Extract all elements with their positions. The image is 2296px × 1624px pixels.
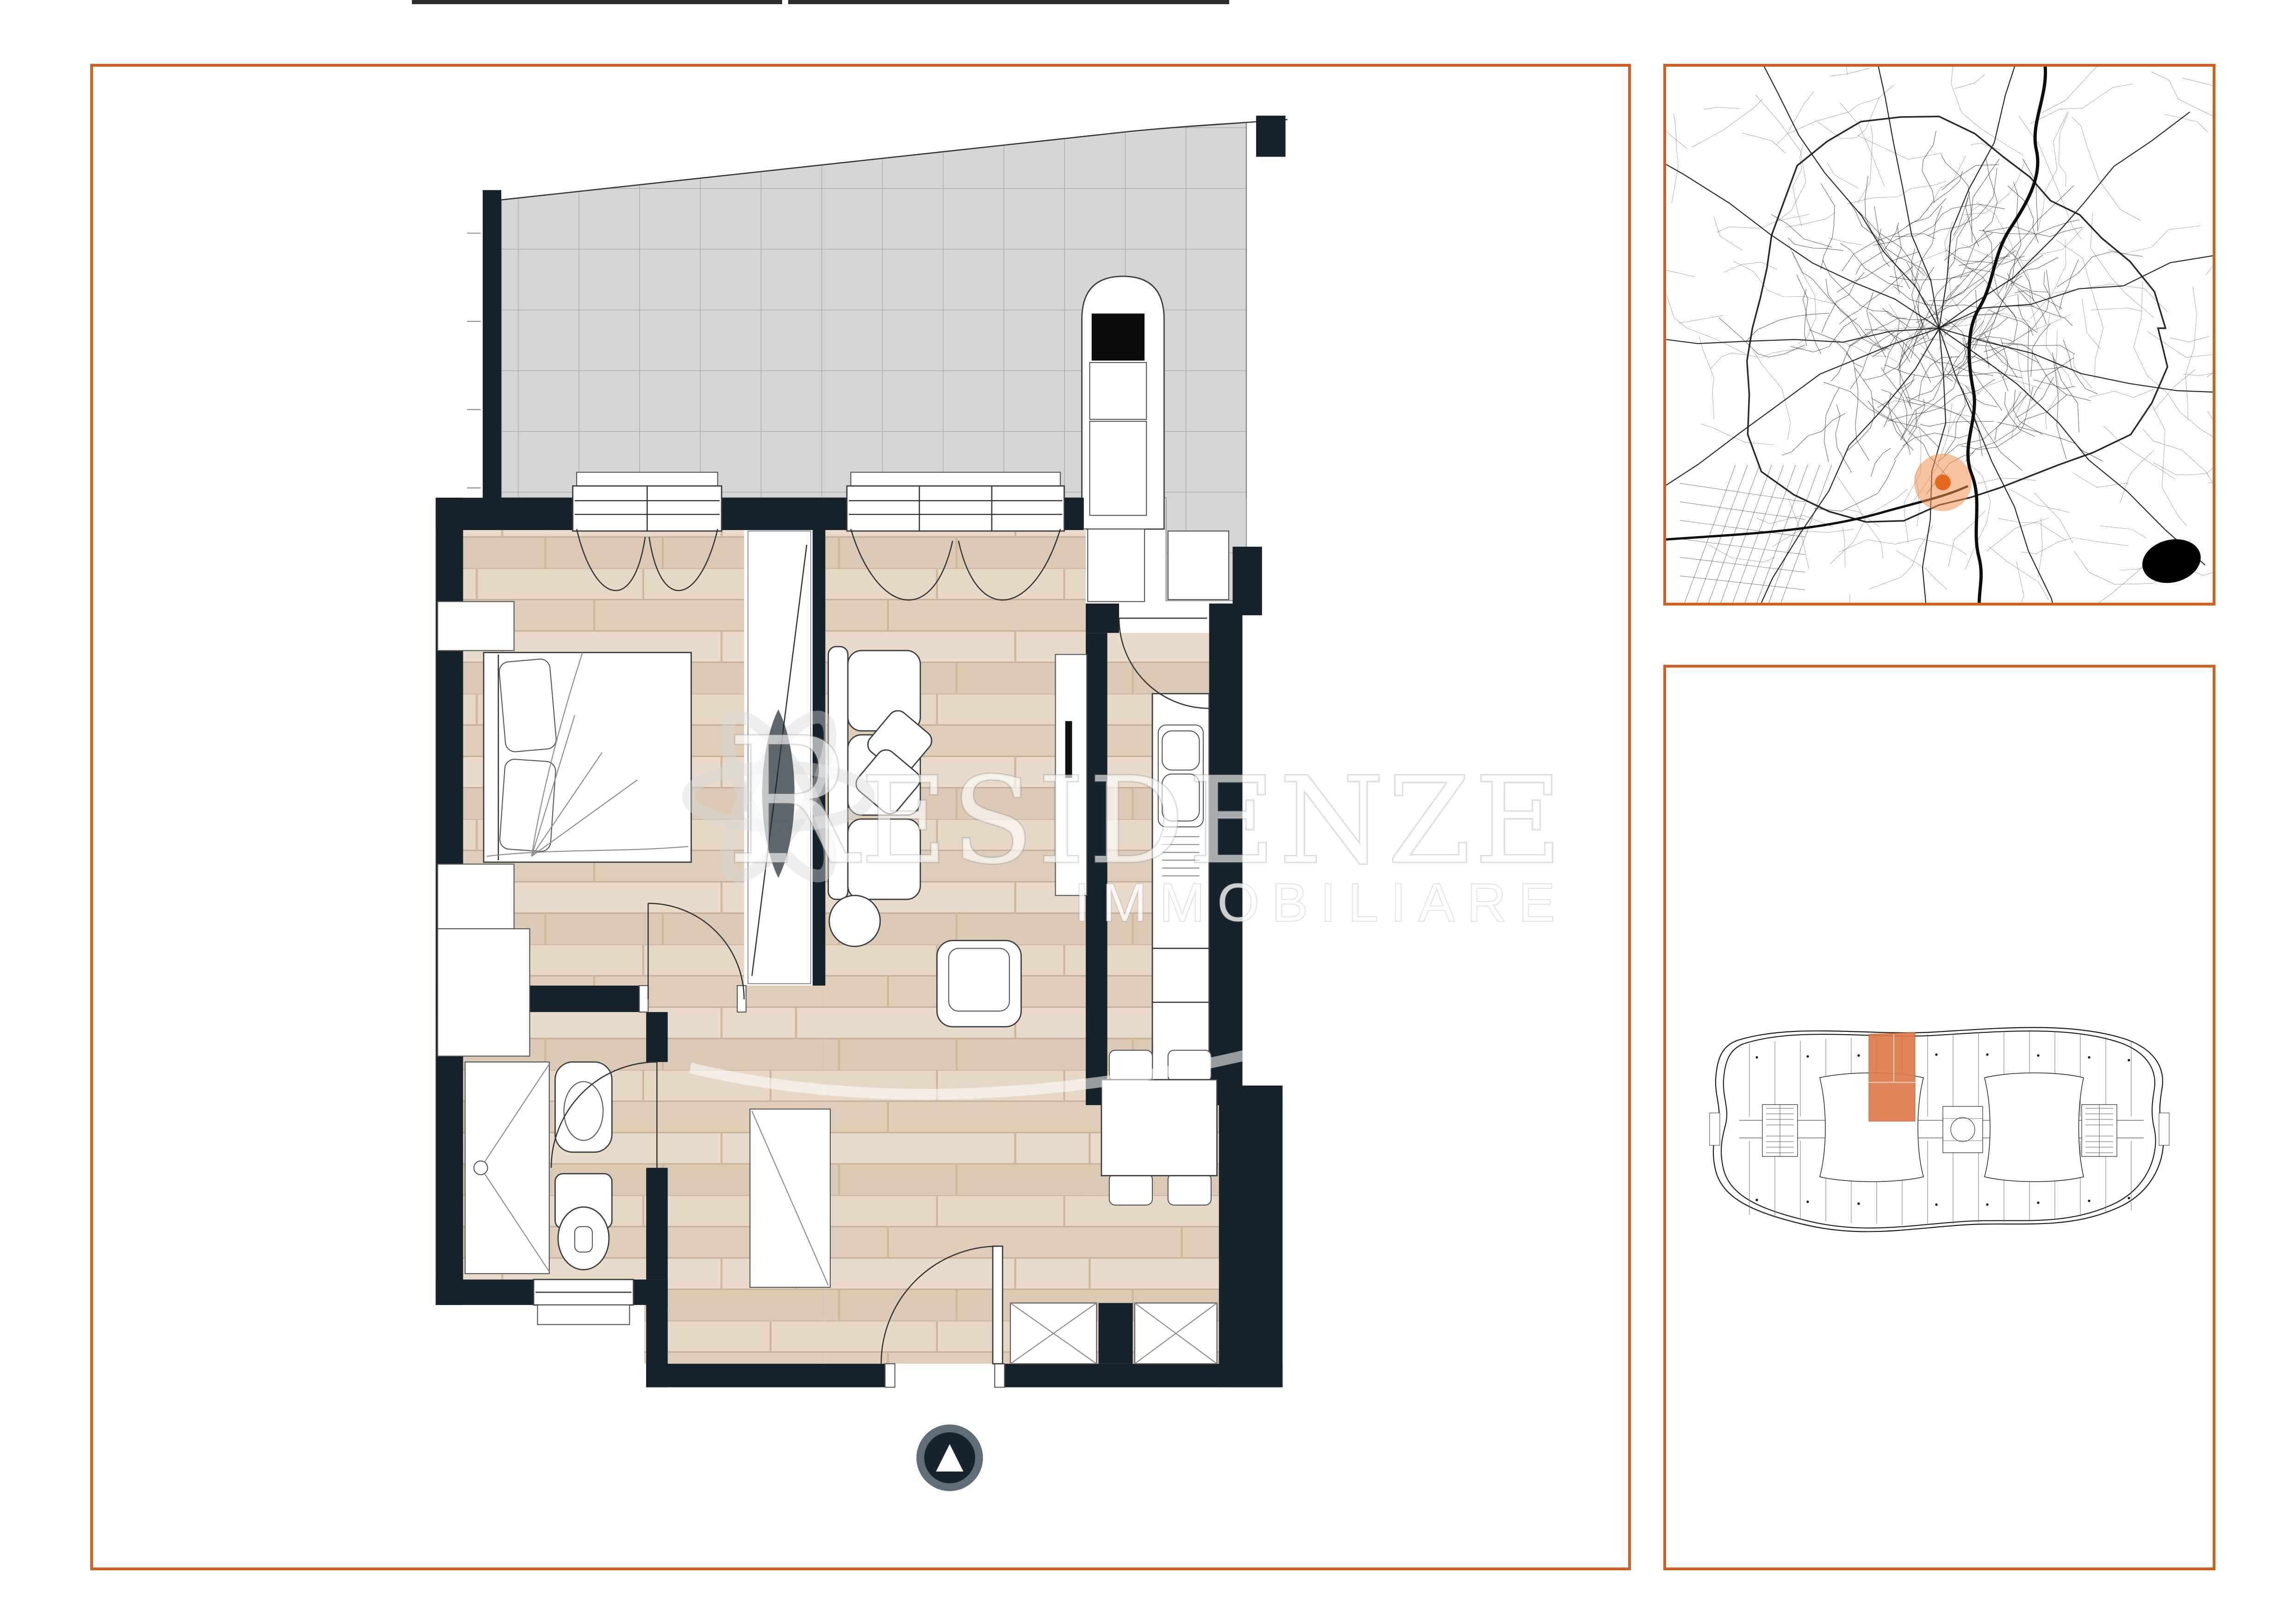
bidet — [555, 1062, 612, 1152]
page-top-crop-bar-right — [788, 0, 1229, 4]
toilet — [555, 1174, 612, 1269]
bathroom-window — [534, 1280, 634, 1324]
terrace-right-wall-tab — [1256, 116, 1285, 157]
building-key-plan — [1666, 668, 2213, 1568]
terrace-left-wall — [483, 190, 501, 529]
dining-table — [1101, 1080, 1217, 1175]
armchair — [937, 941, 1021, 1027]
building-key-plan-panel — [1663, 665, 2215, 1570]
city-map — [1666, 67, 2213, 603]
highlighted-unit — [1869, 1032, 1915, 1121]
page-top-crop-bar-left — [412, 0, 782, 4]
double-bed — [484, 652, 691, 862]
terrace-appliance — [1168, 531, 1229, 600]
dimension-ticks — [467, 233, 481, 488]
watermark-subtitle: IMMOBILIARE — [1075, 872, 1568, 932]
elevator-core — [1943, 1106, 1983, 1153]
location-marker — [1914, 454, 1972, 511]
grill-icon — [1092, 313, 1145, 361]
floor-plan-brochure-page: RESIDENZE IMMOBILIARE — [0, 0, 2296, 1624]
location-map-panel — [1663, 64, 2215, 606]
entrance-marker — [916, 1424, 983, 1491]
wardrobe — [438, 864, 514, 929]
wardrobe — [438, 929, 530, 1056]
hall-closet — [750, 1109, 830, 1287]
apartment-floor-plan: RESIDENZE IMMOBILIARE — [93, 67, 1628, 1568]
shower — [465, 1062, 549, 1274]
terrace-cabinet — [1088, 529, 1145, 602]
chair — [1109, 1174, 1152, 1205]
wardrobe — [438, 601, 514, 650]
apartment-floor-plan-panel: RESIDENZE IMMOBILIARE — [90, 64, 1631, 1570]
chair — [1168, 1174, 1211, 1205]
